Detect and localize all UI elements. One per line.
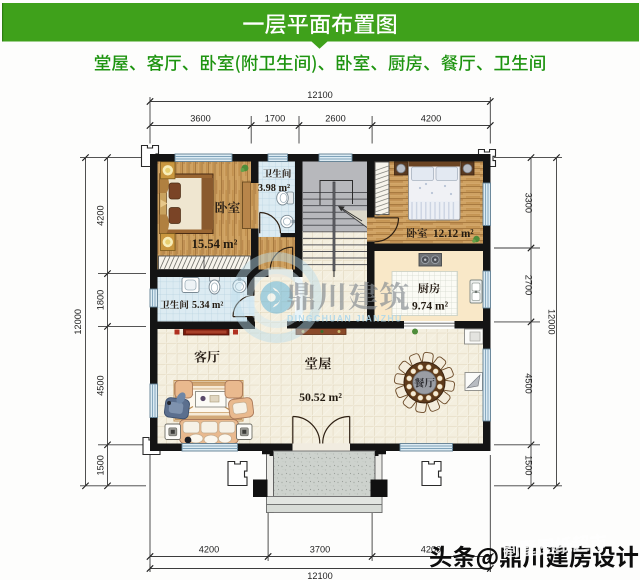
svg-text:3700: 3700 [310,545,330,555]
svg-text:12000: 12000 [73,309,83,335]
svg-text:12000: 12000 [547,309,557,335]
svg-text:1500: 1500 [96,455,106,475]
svg-text:12100: 12100 [307,571,333,580]
svg-text:3.98 m²: 3.98 m² [258,183,290,194]
svg-text:4200: 4200 [199,545,219,555]
svg-text:1800: 1800 [96,290,106,310]
svg-text:4200: 4200 [96,205,106,225]
svg-text:1500: 1500 [524,455,534,475]
svg-text:DINGCHUAN JIANZHU: DINGCHUAN JIANZHU [287,314,403,324]
svg-text:15.54 m²: 15.54 m² [192,237,238,251]
svg-text:4200: 4200 [421,114,441,124]
svg-text:9.74 m²: 9.74 m² [412,301,449,313]
svg-text:5.34 m²: 5.34 m² [192,300,223,311]
svg-text:3600: 3600 [190,114,210,124]
svg-text:4500: 4500 [524,373,534,393]
svg-text:2700: 2700 [524,275,534,295]
svg-text:4500: 4500 [96,375,106,395]
svg-text:3300: 3300 [524,193,534,213]
svg-text:2600: 2600 [325,114,345,124]
svg-text:12.12 m²: 12.12 m² [433,228,474,240]
svg-text:1700: 1700 [265,114,285,124]
svg-text:50.52 m²: 50.52 m² [299,390,342,404]
svg-text:12100: 12100 [307,90,333,100]
